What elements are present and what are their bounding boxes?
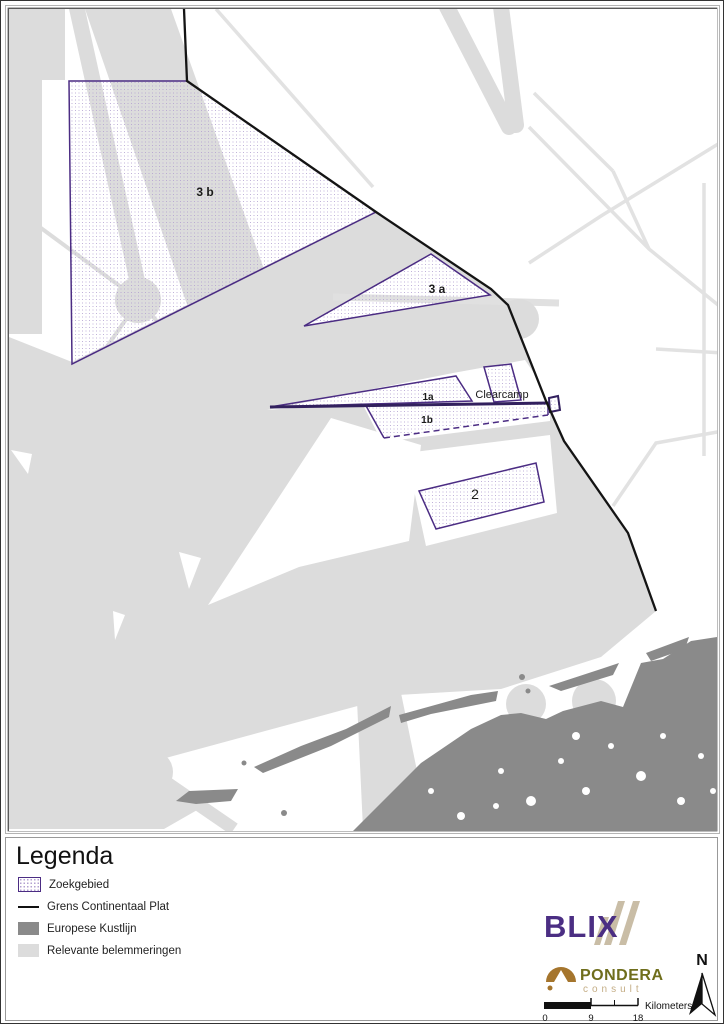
zone-2-label: 2 bbox=[471, 486, 479, 502]
zone-3b-label: 3 b bbox=[196, 185, 213, 199]
legend-item-label: Zoekgebied bbox=[49, 879, 109, 891]
belemmeringen-swatch bbox=[18, 944, 39, 957]
scale-tick-9: 9 bbox=[588, 1013, 593, 1024]
scale-bar-solid-segment bbox=[544, 1002, 591, 1009]
scale-bar: 0 9 18 Kilometers bbox=[539, 994, 699, 1024]
legend-title: Legenda bbox=[16, 842, 113, 871]
zone-1b-label: 1b bbox=[421, 415, 433, 426]
zone-3a-label: 3 a bbox=[429, 282, 446, 296]
north-needle-left bbox=[689, 973, 702, 1015]
blix-wordmark: BLIX bbox=[544, 909, 619, 944]
scale-tick-0: 0 bbox=[542, 1013, 547, 1024]
legend-item-grens: Grens Continentaal Plat bbox=[18, 899, 169, 914]
legend-item-zoekgebied: Zoekgebied bbox=[18, 877, 109, 892]
pondera-arch-icon bbox=[546, 967, 576, 982]
legend-item-label: Relevante belemmeringen bbox=[47, 945, 181, 957]
pondera-logo-graphic: PONDERA consult bbox=[542, 949, 672, 995]
map-document: 3 b 3 a 1a 1b Clearcamp 2 Legenda Zoekge… bbox=[0, 0, 724, 1024]
scale-bar-tick-labels: 0 9 18 bbox=[542, 1013, 643, 1024]
kustlijn-swatch bbox=[18, 922, 39, 935]
pondera-logo: PONDERA consult bbox=[542, 949, 672, 1000]
pondera-dot-icon bbox=[548, 986, 553, 991]
legend-item-belemmeringen: Relevante belemmeringen bbox=[18, 943, 181, 958]
zoekgebied-swatch bbox=[18, 877, 41, 892]
legend-item-label: Europese Kustlijn bbox=[47, 923, 137, 935]
grens-line-swatch bbox=[18, 906, 39, 908]
clearcamp-label: Clearcamp bbox=[475, 389, 528, 401]
legend-item-label: Grens Continentaal Plat bbox=[47, 901, 169, 913]
north-label: N bbox=[696, 952, 708, 969]
legend-item-kustlijn: Europese Kustlijn bbox=[18, 921, 137, 936]
pondera-wordmark: PONDERA bbox=[580, 967, 664, 984]
north-arrow: N bbox=[681, 949, 721, 1024]
north-needle-right bbox=[702, 973, 715, 1015]
north-arrow-graphic: N bbox=[681, 949, 721, 1021]
scale-bar-graphic: 0 9 18 Kilometers bbox=[539, 994, 699, 1024]
blix-logo: BLIX bbox=[542, 897, 654, 956]
scale-tick-18: 18 bbox=[633, 1013, 644, 1024]
blix-logo-graphic: BLIX bbox=[542, 897, 654, 951]
zone-1a-label: 1a bbox=[422, 392, 434, 403]
